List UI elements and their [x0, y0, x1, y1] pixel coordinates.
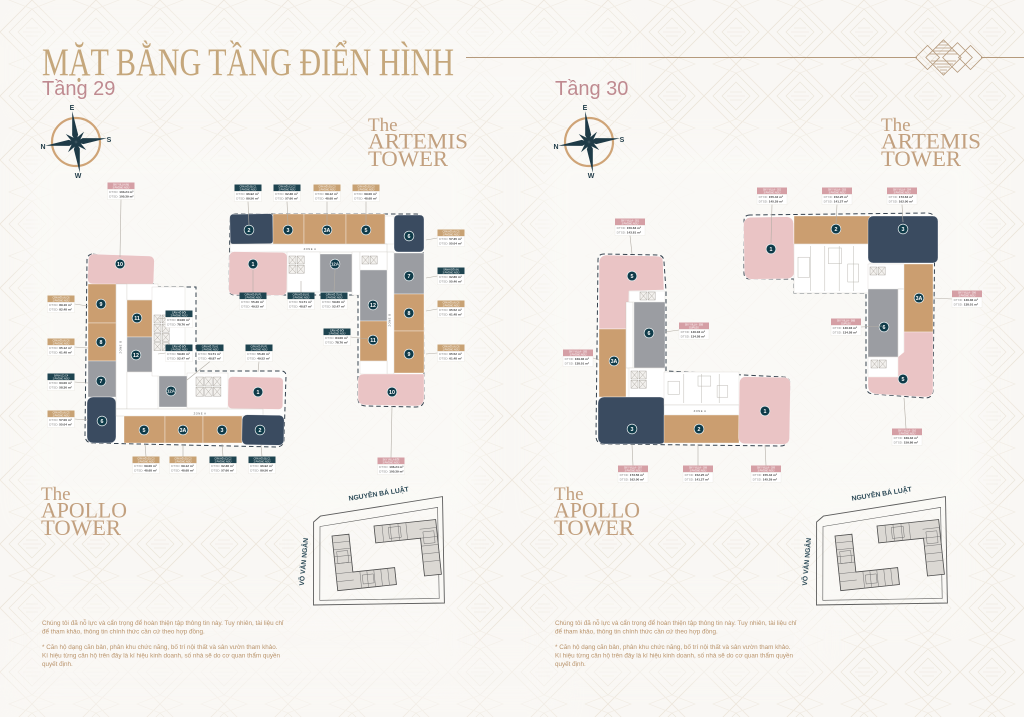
svg-text:3: 3 [902, 227, 905, 233]
svg-text:1: 1 [764, 409, 767, 415]
svg-text:N: N [40, 144, 45, 151]
svg-text:Chúng tôi đã nỗ lực và cẩn trọ: Chúng tôi đã nỗ lực và cẩn trọng để hoàn… [555, 618, 797, 627]
svg-text:Kí hiệu từng căn hộ trên đây l: Kí hiệu từng căn hộ trên đây là kí hiệu … [42, 651, 280, 660]
svg-text:DUPLEX: DUPLEX [841, 322, 851, 325]
svg-text:6: 6 [408, 234, 411, 240]
svg-text:2 PHÒNG NGỦ: 2 PHÒNG NGỦ [240, 188, 257, 191]
svg-text:DTSD: 138.01 m²: DTSD: 138.01 m² [565, 361, 589, 365]
svg-text:DTSD: 78.76 m²: DTSD: 78.76 m² [167, 322, 190, 326]
svg-text:DTSD: 141.27 m²: DTSD: 141.27 m² [685, 477, 709, 481]
svg-text:9: 9 [100, 302, 103, 308]
svg-text:DTSD: 143.81 m²: DTSD: 143.81 m² [617, 230, 641, 234]
svg-text:12: 12 [133, 353, 139, 359]
svg-text:5: 5 [902, 377, 905, 383]
svg-text:DTSD: 57.66 m²: DTSD: 57.66 m² [211, 468, 234, 472]
svg-text:DTSD: 159.86 m²: DTSD: 159.86 m² [894, 440, 918, 444]
svg-text:2 PHÒNG NGỦ: 2 PHÒNG NGỦ [215, 460, 232, 463]
svg-text:DTSD: 89.56 m²: DTSD: 89.56 m² [250, 468, 273, 472]
svg-text:quyết định.: quyết định. [42, 659, 73, 668]
svg-text:* Căn hộ dạng căn bản, phân kh: * Căn hộ dạng căn bản, phân khu chức năn… [42, 642, 278, 651]
svg-text:3: 3 [631, 427, 634, 433]
svg-text:TOWER: TOWER [881, 146, 961, 171]
svg-text:3 PHÒNG NGỦ: 3 PHÒNG NGỦ [570, 353, 587, 356]
svg-text:DTSD: 52.47 m²: DTSD: 52.47 m² [322, 304, 345, 308]
svg-text:Chúng tôi đã nỗ lực và cẩn trọ: Chúng tôi đã nỗ lực và cẩn trọng để hoàn… [42, 618, 284, 627]
svg-text:DTSD: 162.00 m²: DTSD: 162.00 m² [620, 477, 644, 481]
svg-text:7: 7 [100, 379, 103, 385]
svg-text:11: 11 [134, 316, 140, 322]
svg-text:DTSD: 58.36 m²: DTSD: 58.36 m² [49, 385, 72, 389]
svg-text:3 PHÒNG NGỦ: 3 PHÒNG NGỦ [899, 432, 916, 435]
svg-text:ZONE A: ZONE A [694, 409, 707, 413]
svg-text:3 PHÒNG NGỦ: 3 PHÒNG NGỦ [758, 469, 775, 472]
svg-text:DTSD: 57.66 m²: DTSD: 57.66 m² [275, 196, 298, 200]
svg-text:11: 11 [370, 338, 376, 344]
svg-text:12A: 12A [167, 389, 175, 394]
svg-text:để tham khảo, thông tin chính: để tham khảo, thông tin chính thức cần c… [555, 627, 718, 636]
svg-text:12A: 12A [331, 262, 339, 267]
svg-text:1 PHÒNG NGỦ: 1 PHÒNG NGỦ [202, 348, 219, 351]
svg-text:1 PHÒNG NGỦ: 1 PHÒNG NGỦ [53, 377, 70, 380]
svg-text:1 PHÒNG NGỦ: 1 PHÒNG NGỦ [443, 348, 460, 351]
svg-text:DTSD: 89.56 m²: DTSD: 89.56 m² [236, 196, 259, 200]
svg-text:ZONE B: ZONE B [119, 340, 123, 353]
svg-text:1 PHÒNG NGỦ: 1 PHÒNG NGỦ [138, 460, 155, 463]
svg-text:1: 1 [252, 262, 255, 268]
svg-text:DTSD: 138.01 m²: DTSD: 138.01 m² [954, 302, 978, 306]
svg-text:3A: 3A [916, 296, 923, 302]
svg-text:DTSD: 55.04 m²: DTSD: 55.04 m² [439, 241, 462, 245]
svg-text:3 PHÒNG NGỦ: 3 PHÒNG NGỦ [383, 461, 400, 464]
svg-text:2: 2 [698, 427, 701, 433]
svg-text:3 PHÒNG NGỦ: 3 PHÒNG NGỦ [625, 469, 642, 472]
svg-text:DTSD: 82.48 m²: DTSD: 82.48 m² [49, 307, 72, 311]
svg-text:DTSD: 61.48 m²: DTSD: 61.48 m² [49, 350, 72, 354]
svg-text:DTSD: 48.87 m²: DTSD: 48.87 m² [198, 356, 221, 360]
svg-text:2 PHÒNG NGỦ: 2 PHÒNG NGỦ [171, 314, 188, 317]
svg-text:12: 12 [370, 303, 376, 309]
svg-text:DTSD: 48.87 m²: DTSD: 48.87 m² [289, 304, 312, 308]
svg-text:DTSD: 48.68 m²: DTSD: 48.68 m² [134, 468, 157, 472]
svg-text:DTSD: 49.52 m²: DTSD: 49.52 m² [241, 304, 264, 308]
svg-text:3A: 3A [324, 228, 331, 234]
svg-text:1: 1 [770, 247, 773, 253]
svg-text:DUPLEX: DUPLEX [689, 326, 699, 329]
svg-text:DTSD: 48.68 m²: DTSD: 48.68 m² [171, 468, 194, 472]
svg-text:DTSD: 162.00 m²: DTSD: 162.00 m² [889, 199, 913, 203]
svg-text:DTSD: 100.39 m²: DTSD: 100.39 m² [109, 194, 133, 198]
svg-text:3: 3 [221, 428, 224, 434]
svg-text:ZONE A: ZONE A [194, 412, 207, 416]
svg-text:TOWER: TOWER [41, 515, 121, 540]
svg-text:3 PHÒNG NGỦ: 3 PHÒNG NGỦ [764, 191, 781, 194]
svg-text:DTSD: 78.76 m²: DTSD: 78.76 m² [325, 340, 348, 344]
svg-text:1 PHÒNG NGỦ: 1 PHÒNG NGỦ [443, 233, 460, 236]
svg-text:3: 3 [287, 228, 290, 234]
svg-text:1 PHÒNG NGỦ: 1 PHÒNG NGỦ [53, 342, 70, 345]
svg-text:2 PHÒNG NGỦ: 2 PHÒNG NGỦ [293, 296, 310, 299]
svg-text:quyết định.: quyết định. [555, 659, 586, 668]
svg-text:2 PHÒNG NGỦ: 2 PHÒNG NGỦ [279, 188, 296, 191]
svg-text:ZONE A: ZONE A [304, 247, 317, 251]
svg-text:DTSD: 61.48 m²: DTSD: 61.48 m² [439, 356, 462, 360]
svg-text:3 PHÒNG NGỦ: 3 PHÒNG NGỦ [959, 294, 976, 297]
svg-text:6: 6 [101, 419, 104, 425]
svg-text:DTSD: 100.39 m²: DTSD: 100.39 m² [379, 469, 403, 473]
svg-text:1 PHÒNG NGỦ: 1 PHÒNG NGỦ [245, 296, 262, 299]
svg-text:1: 1 [257, 390, 260, 396]
svg-text:3 PHÒNG NGỦ: 3 PHÒNG NGỦ [113, 186, 130, 189]
svg-text:1 PHÒNG NGỦ: 1 PHÒNG NGỦ [171, 348, 188, 351]
svg-text:DTSD: 55.46 m²: DTSD: 55.46 m² [439, 279, 462, 283]
svg-text:1 PHÒNG NGỦ: 1 PHÒNG NGỦ [175, 460, 192, 463]
svg-text:8: 8 [408, 311, 411, 317]
svg-text:10: 10 [117, 262, 123, 268]
svg-text:để tham khảo, thông tin chính: để tham khảo, thông tin chính thức cần c… [42, 627, 205, 636]
svg-text:1 PHÒNG NGỦ: 1 PHÒNG NGỦ [53, 299, 70, 302]
svg-text:1 PHÒNG NGỦ: 1 PHÒNG NGỦ [251, 348, 268, 351]
svg-text:7: 7 [408, 274, 411, 280]
svg-text:E: E [70, 105, 75, 112]
svg-text:DTSD: 141.27 m²: DTSD: 141.27 m² [824, 199, 848, 203]
svg-text:DTSD: 55.04 m²: DTSD: 55.04 m² [49, 422, 72, 426]
svg-text:2: 2 [835, 227, 838, 233]
svg-text:2 PHÒNG NGỦ: 2 PHÒNG NGỦ [254, 460, 271, 463]
svg-text:Tầng 29: Tầng 29 [42, 78, 115, 100]
svg-text:9: 9 [408, 352, 411, 358]
svg-text:5: 5 [143, 428, 146, 434]
svg-text:TOWER: TOWER [368, 146, 448, 171]
svg-text:5: 5 [365, 228, 368, 234]
svg-text:DTSD: 134.58 m²: DTSD: 134.58 m² [681, 334, 705, 338]
svg-text:Kí hiệu từng căn hộ trên đây l: Kí hiệu từng căn hộ trên đây là kí hiệu … [555, 651, 793, 660]
svg-text:1 PHÒNG NGỦ: 1 PHÒNG NGỦ [358, 188, 375, 191]
svg-text:3A: 3A [180, 428, 187, 434]
svg-text:2: 2 [259, 428, 262, 434]
svg-text:W: W [75, 173, 82, 180]
svg-text:1 PHÒNG NGỦ: 1 PHÒNG NGỦ [53, 414, 70, 417]
svg-text:6: 6 [883, 325, 886, 331]
svg-text:DTSD: 49.52 m²: DTSD: 49.52 m² [247, 356, 270, 360]
svg-text:DTSD: 145.29 m²: DTSD: 145.29 m² [753, 477, 777, 481]
svg-text:1 PHÒNG NGỦ: 1 PHÒNG NGỦ [319, 188, 336, 191]
svg-text:* Căn hộ dạng căn bản, phân kh: * Căn hộ dạng căn bản, phân khu chức năn… [555, 642, 791, 651]
svg-text:3 PHÒNG NGỦ: 3 PHÒNG NGỦ [894, 191, 911, 194]
svg-text:3 PHÒNG NGỦ: 3 PHÒNG NGỦ [829, 191, 846, 194]
svg-text:DTSD: 61.48 m²: DTSD: 61.48 m² [439, 312, 462, 316]
svg-text:ZONE B: ZONE B [388, 313, 392, 326]
svg-text:3 PHÒNG NGỦ: 3 PHÒNG NGỦ [443, 271, 460, 274]
svg-text:DTSD: 145.29 m²: DTSD: 145.29 m² [759, 199, 783, 203]
svg-text:DTSD: 134.58 m²: DTSD: 134.58 m² [833, 330, 857, 334]
svg-text:1 PHÒNG NGỦ: 1 PHÒNG NGỦ [326, 296, 343, 299]
svg-text:TOWER: TOWER [554, 515, 634, 540]
svg-text:6: 6 [648, 331, 651, 337]
svg-text:DTSD: 48.68 m²: DTSD: 48.68 m² [354, 196, 377, 200]
svg-text:1 PHÒNG NGỦ: 1 PHÒNG NGỦ [443, 304, 460, 307]
svg-text:Tầng 30: Tầng 30 [555, 78, 628, 100]
svg-text:DTSD: 52.47 m²: DTSD: 52.47 m² [167, 356, 190, 360]
svg-text:10: 10 [389, 390, 395, 396]
svg-text:8: 8 [100, 340, 103, 346]
svg-text:3 PHÒNG NGỦ: 3 PHÒNG NGỦ [622, 222, 639, 225]
svg-text:5: 5 [631, 274, 634, 280]
svg-text:2: 2 [248, 228, 251, 234]
svg-text:3 PHÒNG NGỦ: 3 PHÒNG NGỦ [690, 469, 707, 472]
svg-text:DTSD: 48.68 m²: DTSD: 48.68 m² [315, 196, 338, 200]
svg-text:2 PHÒNG NGỦ: 2 PHÒNG NGỦ [329, 332, 346, 335]
svg-text:3A: 3A [611, 359, 618, 365]
svg-text:S: S [107, 137, 112, 144]
